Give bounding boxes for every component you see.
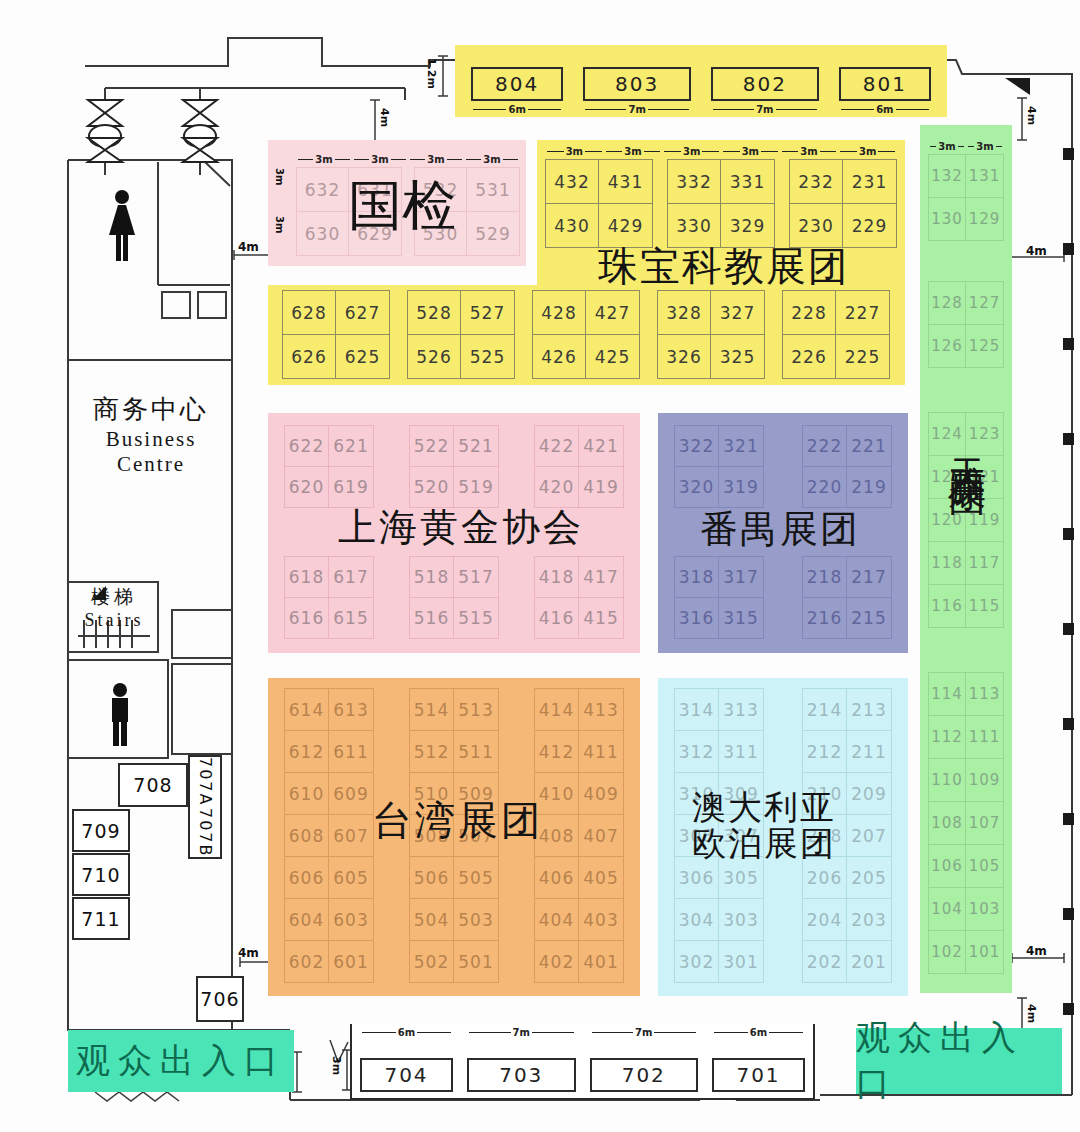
- dim-3m: 3m: [838, 146, 897, 157]
- zone-700-strip: 6m7047m7037m7026m701: [350, 1024, 815, 1100]
- booth-703: 703: [467, 1058, 576, 1092]
- booth-111: 111: [966, 715, 1004, 759]
- australia-label-line1: 澳大利亚: [692, 790, 836, 826]
- booth-125: 125: [966, 324, 1004, 368]
- booth-802: 802: [711, 67, 819, 101]
- booth-707b: 707B: [196, 808, 215, 858]
- dim-6m: 6m: [839, 101, 931, 117]
- zone-label-taiwan: 台湾展团: [372, 800, 544, 842]
- booth-209: 209: [847, 772, 892, 815]
- booth-614: 614: [284, 688, 329, 731]
- booth-617: 617: [329, 556, 374, 598]
- stairs-label: 楼梯 Stairs: [72, 584, 156, 631]
- booth-425: 425: [586, 334, 640, 379]
- booth-105: 105: [966, 844, 1004, 888]
- booth-116: 116: [928, 584, 966, 628]
- booth-414: 414: [534, 688, 579, 731]
- booth-132: 132: [928, 154, 966, 198]
- dim-1-2m: 1.2m: [425, 58, 438, 89]
- booth-219: 219: [847, 466, 892, 508]
- booth-328: 328: [657, 290, 711, 335]
- booth-513: 513: [454, 688, 499, 731]
- booth-231: 231: [843, 159, 897, 204]
- booth-317: 317: [719, 556, 764, 598]
- booth-610: 610: [284, 772, 329, 815]
- business-centre-label: 商务中心 Business Centre: [78, 392, 224, 477]
- booth-521: 521: [454, 425, 499, 467]
- booth-127: 127: [966, 281, 1004, 325]
- entrance-left: 观众出入口: [68, 1030, 294, 1092]
- booth-226: 226: [782, 334, 836, 379]
- booth-306: 306: [674, 856, 719, 899]
- booth-126: 126: [928, 324, 966, 368]
- booth-120: 120: [928, 498, 966, 542]
- booth-606: 606: [284, 856, 329, 899]
- booth-405: 405: [579, 856, 624, 899]
- booth-420: 420: [534, 466, 579, 508]
- booth-514: 514: [409, 688, 454, 731]
- booth-707a: 707A: [196, 757, 215, 806]
- booth-421: 421: [579, 425, 624, 467]
- zone-800-strip: 8046m8037m8027m8016m: [455, 45, 947, 117]
- booth-625: 625: [336, 334, 390, 379]
- booth-616: 616: [284, 597, 329, 639]
- booth-222: 222: [802, 425, 847, 467]
- booth-615: 615: [329, 597, 374, 639]
- booth-528: 528: [407, 290, 461, 335]
- booth-327: 327: [711, 290, 765, 335]
- booth-627: 627: [336, 290, 390, 335]
- booth-203: 203: [847, 898, 892, 941]
- booth-407: 407: [579, 814, 624, 857]
- strip-booth-704: 6m704: [360, 1024, 453, 1092]
- australia-label-line2: 欧泊展团: [692, 826, 836, 862]
- booth-607: 607: [329, 814, 374, 857]
- booth-313: 313: [719, 688, 764, 731]
- dim-6m: 6m: [712, 1024, 805, 1040]
- booth-104: 104: [928, 887, 966, 931]
- booth-517: 517: [454, 556, 499, 598]
- booth-115: 115: [966, 584, 1004, 628]
- booth-608: 608: [284, 814, 329, 857]
- dim-3m-bottom: 3m: [330, 1056, 343, 1075]
- booth-216: 216: [802, 597, 847, 639]
- booth-619: 619: [329, 466, 374, 508]
- booth-121: 121: [966, 455, 1004, 499]
- booth-431: 431: [599, 159, 653, 204]
- booth-504: 504: [409, 898, 454, 941]
- mens-toilet-icon: [102, 682, 138, 748]
- dim-4m-top-right: 4m: [1025, 106, 1038, 125]
- booth-108: 108: [928, 801, 966, 845]
- dim-7m: 7m: [590, 1024, 699, 1040]
- booth-430: 430: [545, 203, 599, 248]
- booth-214: 214: [802, 688, 847, 731]
- booth-520: 520: [409, 466, 454, 508]
- booth-804: 804: [471, 67, 563, 101]
- booth-211: 211: [847, 730, 892, 773]
- dim-3m: 3m: [966, 141, 1004, 152]
- booth-612: 612: [284, 730, 329, 773]
- booth-232: 232: [789, 159, 843, 204]
- booth-320: 320: [674, 466, 719, 508]
- booth-322: 322: [674, 425, 719, 467]
- booth-114: 114: [928, 672, 966, 716]
- booth-527: 527: [461, 290, 515, 335]
- booth-516: 516: [409, 597, 454, 639]
- booth-102: 102: [928, 930, 966, 974]
- booth-709: 709: [72, 809, 130, 852]
- booth-207: 207: [847, 814, 892, 857]
- womens-toilet-icon: [100, 188, 144, 266]
- booth-618: 618: [284, 556, 329, 598]
- dim-3m: 3m: [780, 146, 839, 157]
- strip-booth-801: 8016m: [839, 57, 931, 117]
- booth-605: 605: [329, 856, 374, 899]
- booth-601: 601: [329, 940, 374, 983]
- booth-710: 710: [72, 853, 130, 896]
- booth-404: 404: [534, 898, 579, 941]
- booth-325: 325: [711, 334, 765, 379]
- booth-117: 117: [966, 541, 1004, 585]
- booth-701: 701: [712, 1058, 805, 1092]
- strip-booth-803: 8037m: [583, 57, 691, 117]
- booth-321: 321: [719, 425, 764, 467]
- booth-130: 130: [928, 197, 966, 241]
- booth-221: 221: [847, 425, 892, 467]
- booth-628: 628: [282, 290, 336, 335]
- booth-501: 501: [454, 940, 499, 983]
- booth-113: 113: [966, 672, 1004, 716]
- booth-409: 409: [579, 772, 624, 815]
- booth-522: 522: [409, 425, 454, 467]
- booth-206: 206: [802, 856, 847, 899]
- dim-3m: 3m: [604, 146, 663, 157]
- booth-708: 708: [118, 763, 188, 807]
- booth-626: 626: [282, 334, 336, 379]
- booth-230: 230: [789, 203, 843, 248]
- booth-426: 426: [532, 334, 586, 379]
- strip-booth-802: 8027m: [711, 57, 819, 117]
- booth-304: 304: [674, 898, 719, 941]
- booth-212: 212: [802, 730, 847, 773]
- booth-112: 112: [928, 715, 966, 759]
- dim-3m: 3m: [928, 141, 966, 152]
- business-centre-en2: Centre: [78, 452, 224, 477]
- booth-118: 118: [928, 541, 966, 585]
- booth-101: 101: [966, 930, 1004, 974]
- booth-314: 314: [674, 688, 719, 731]
- booth-227: 227: [836, 290, 890, 335]
- booth-218: 218: [802, 556, 847, 598]
- booth-603: 603: [329, 898, 374, 941]
- booth-702: 702: [590, 1058, 699, 1092]
- booth-613: 613: [329, 688, 374, 731]
- booth-428: 428: [532, 290, 586, 335]
- booth-406: 406: [534, 856, 579, 899]
- booth-106: 106: [928, 844, 966, 888]
- booth-401: 401: [579, 940, 624, 983]
- business-centre-en1: Business: [78, 427, 224, 452]
- booth-415: 415: [579, 597, 624, 639]
- booth-427: 427: [586, 290, 640, 335]
- booth-611: 611: [329, 730, 374, 773]
- booth-801: 801: [839, 67, 931, 101]
- booth-518: 518: [409, 556, 454, 598]
- booth-505: 505: [454, 856, 499, 899]
- booth-110: 110: [928, 758, 966, 802]
- booth-525: 525: [461, 334, 515, 379]
- booth-312: 312: [674, 730, 719, 773]
- booth-326: 326: [657, 334, 711, 379]
- booth-109: 109: [966, 758, 1004, 802]
- stairs-en: Stairs: [72, 610, 156, 631]
- dim-3m: 3m: [545, 146, 604, 157]
- booth-107: 107: [966, 801, 1004, 845]
- booth-515: 515: [454, 597, 499, 639]
- booth-604: 604: [284, 898, 329, 941]
- booth-331: 331: [721, 159, 775, 204]
- booth-512: 512: [409, 730, 454, 773]
- booth-403: 403: [579, 898, 624, 941]
- zone-label-tianya: 天雅展团: [946, 428, 986, 460]
- dim-7m: 7m: [711, 101, 819, 117]
- column-symbol: [88, 100, 217, 162]
- booth-129: 129: [966, 197, 1004, 241]
- booth-602: 602: [284, 940, 329, 983]
- booth-621: 621: [329, 425, 374, 467]
- booth-419: 419: [579, 466, 624, 508]
- booth-502: 502: [409, 940, 454, 983]
- booth-707ab: 707A 707B: [188, 755, 222, 859]
- booth-402: 402: [534, 940, 579, 983]
- dim-4m-top-center: 4m: [378, 108, 391, 127]
- booth-506: 506: [409, 856, 454, 899]
- strip-booth-703: 7m703: [467, 1024, 576, 1092]
- booth-526: 526: [407, 334, 461, 379]
- booth-303: 303: [719, 898, 764, 941]
- booth-511: 511: [454, 730, 499, 773]
- dim-3m: 3m: [721, 146, 780, 157]
- dim-6m: 6m: [360, 1024, 453, 1040]
- booth-432: 432: [545, 159, 599, 204]
- booth-215: 215: [847, 597, 892, 639]
- booth-319: 319: [719, 466, 764, 508]
- booth-318: 318: [674, 556, 719, 598]
- business-centre-cn: 商务中心: [78, 392, 224, 427]
- exhibition-floor-plan: 8046m8037m8027m8016m 1.2m 3m3m3m3m 63263…: [0, 0, 1080, 1132]
- booth-225: 225: [836, 334, 890, 379]
- booth-228: 228: [782, 290, 836, 335]
- booth-332: 332: [667, 159, 721, 204]
- booth-119: 119: [966, 498, 1004, 542]
- booth-329: 329: [721, 203, 775, 248]
- booth-305: 305: [719, 856, 764, 899]
- booth-620: 620: [284, 466, 329, 508]
- booth-609: 609: [329, 772, 374, 815]
- booth-103: 103: [966, 887, 1004, 931]
- booth-205: 205: [847, 856, 892, 899]
- dim-3m: 3m: [662, 146, 721, 157]
- booth-311: 311: [719, 730, 764, 773]
- booth-302: 302: [674, 940, 719, 983]
- dim-7m: 7m: [467, 1024, 576, 1040]
- booth-417: 417: [579, 556, 624, 598]
- dim-6m: 6m: [471, 101, 563, 117]
- booth-316: 316: [674, 597, 719, 639]
- strip-booth-701: 6m701: [712, 1024, 805, 1092]
- strip-booth-804: 8046m: [471, 57, 563, 117]
- booth-519: 519: [454, 466, 499, 508]
- booth-412: 412: [534, 730, 579, 773]
- booth-315: 315: [719, 597, 764, 639]
- entrance-right: 观众出入口: [856, 1028, 1062, 1094]
- booth-229: 229: [843, 203, 897, 248]
- booth-422: 422: [534, 425, 579, 467]
- booth-622: 622: [284, 425, 329, 467]
- zone-label-shanghai-gold: 上海黄金协会: [338, 508, 584, 548]
- booth-201: 201: [847, 940, 892, 983]
- booth-128: 128: [928, 281, 966, 325]
- stairs-cn: 楼梯: [72, 584, 156, 610]
- booth-330: 330: [667, 203, 721, 248]
- booth-429: 429: [599, 203, 653, 248]
- booth-416: 416: [534, 597, 579, 639]
- booth-503: 503: [454, 898, 499, 941]
- dim-7m: 7m: [583, 101, 691, 117]
- booth-411: 411: [579, 730, 624, 773]
- booth-413: 413: [579, 688, 624, 731]
- zone-label-guojian: 国检: [348, 178, 456, 235]
- booth-220: 220: [802, 466, 847, 508]
- booth-301: 301: [719, 940, 764, 983]
- booth-217: 217: [847, 556, 892, 598]
- strip-booth-702: 7m702: [590, 1024, 699, 1092]
- booth-711: 711: [72, 897, 130, 940]
- booth-418: 418: [534, 556, 579, 598]
- booth-122: 122: [928, 455, 966, 499]
- booth-204: 204: [802, 898, 847, 941]
- dim-4m-right-lower: 4m: [1026, 944, 1047, 958]
- zone-tianya: 3m3m 132131130129 128127126125 124123122…: [920, 125, 1012, 993]
- dim-4m-left-upper: 4m: [238, 240, 259, 254]
- dim-4m-left-lower: 4m: [238, 946, 259, 960]
- zone-label-panyu: 番禺展团: [700, 510, 860, 550]
- zone-label-jewelry: 珠宝科教展团: [598, 246, 850, 288]
- booth-131: 131: [966, 154, 1004, 198]
- booth-706: 706: [196, 976, 244, 1022]
- booth-803: 803: [583, 67, 691, 101]
- booth-202: 202: [802, 940, 847, 983]
- zone-label-australia-opal: 澳大利亚 欧泊展团: [692, 790, 836, 861]
- booth-213: 213: [847, 688, 892, 731]
- dim-4m-right-upper: 4m: [1026, 244, 1047, 258]
- booth-704: 704: [360, 1058, 453, 1092]
